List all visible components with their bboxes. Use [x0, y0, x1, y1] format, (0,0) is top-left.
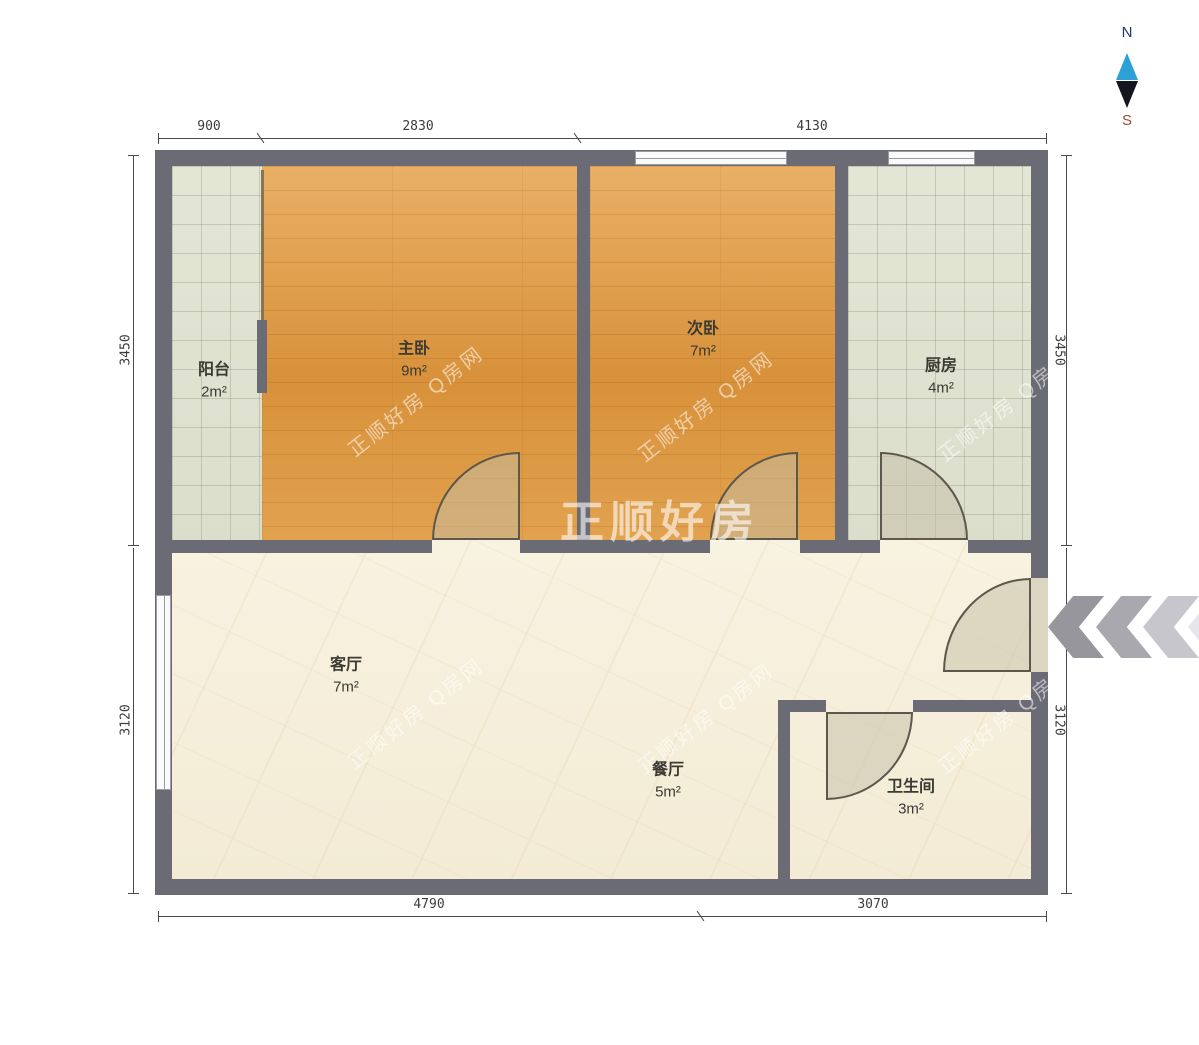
room-area: 5m²: [652, 782, 684, 804]
center-watermark: 正顺好房: [560, 486, 760, 550]
wall-balcony-stub: [257, 320, 267, 393]
room-label-bathroom: 卫生间 3m²: [887, 776, 935, 821]
dim-bottom-2: 3070: [857, 897, 888, 912]
room-label-dining-room: 餐厅 5m²: [652, 759, 684, 804]
dim-left-1: 3450: [119, 334, 134, 365]
wall-kitchen-divider: [835, 166, 848, 553]
wall-bathroom-left: [778, 700, 790, 879]
chevron-left-icon: [1048, 596, 1104, 658]
room-name: 厨房: [925, 355, 957, 378]
dim-left-2: 3120: [119, 704, 134, 735]
compass-north-label: N: [1122, 24, 1133, 41]
wall-mid-seg-3: [800, 540, 880, 553]
wall-bottom: [155, 879, 1048, 895]
dim-bottom-1: 4790: [413, 897, 444, 912]
compass-needle-north-icon: [1116, 53, 1138, 80]
room-label-second-bedroom: 次卧 7m²: [687, 318, 719, 363]
room-area: 2m²: [198, 382, 230, 404]
room-name: 次卧: [687, 318, 719, 341]
floor-plan: 正顺好房 Q房网 正顺好房 Q房网 正顺好房 Q房网 正顺好房 Q房网 正顺好房…: [0, 0, 1199, 1045]
room-name: 阳台: [198, 359, 230, 382]
wall-mid-seg-1: [172, 540, 432, 553]
room-name: 餐厅: [652, 759, 684, 782]
room-label-kitchen: 厨房 4m²: [925, 355, 957, 400]
room-label-master-bedroom: 主卧 9m²: [398, 338, 430, 383]
room-area: 9m²: [398, 361, 430, 383]
room-area: 3m²: [887, 799, 935, 821]
dim-top-2: 2830: [402, 119, 433, 134]
room-name: 客厅: [330, 654, 362, 677]
room-area: 7m²: [330, 677, 362, 699]
room-area: 4m²: [925, 378, 957, 400]
room-label-balcony: 阳台 2m²: [198, 359, 230, 404]
wall-bathroom-top-1: [778, 700, 826, 712]
window-top-second-bedroom: [635, 151, 787, 165]
entry-threshold: [1031, 578, 1048, 672]
room-name: 主卧: [398, 338, 430, 361]
window-top-kitchen: [888, 151, 975, 165]
compass-south-label: S: [1122, 112, 1132, 129]
room-label-living-room: 客厅 7m²: [330, 654, 362, 699]
living-dining-floor: [172, 540, 1031, 879]
room-area: 7m²: [687, 341, 719, 363]
window-left-living-room: [156, 595, 171, 790]
dim-right-2: 3120: [1052, 704, 1067, 735]
compass-needle-south-icon: [1116, 81, 1138, 108]
dim-right-1: 3450: [1052, 334, 1067, 365]
dim-top-3: 4130: [796, 119, 827, 134]
dim-top-1: 900: [197, 119, 220, 134]
room-name: 卫生间: [887, 776, 935, 799]
wall-mid-seg-4: [968, 540, 1031, 553]
